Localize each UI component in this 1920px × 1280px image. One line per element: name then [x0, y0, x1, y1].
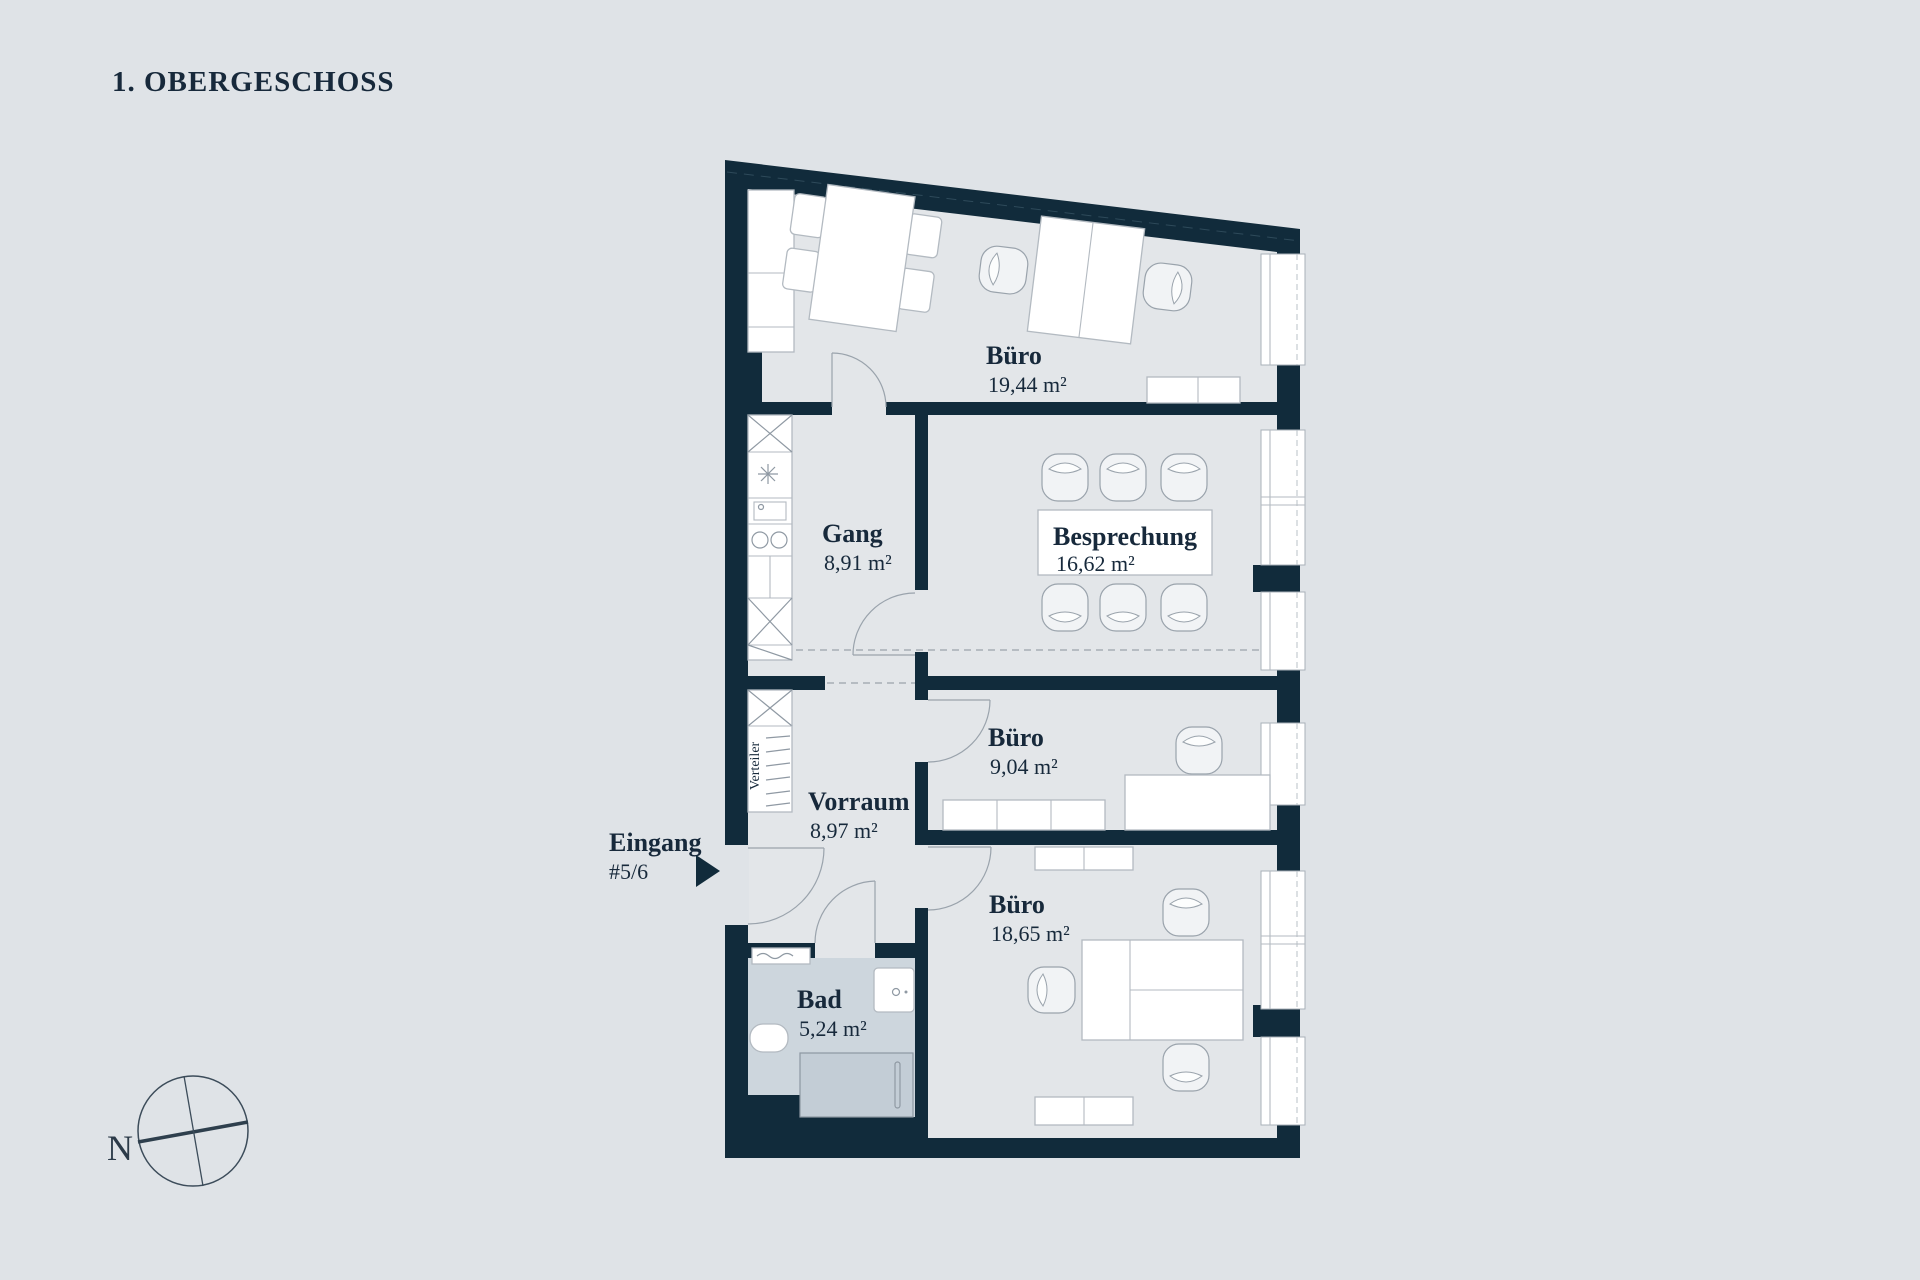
room-name: Büro: [988, 723, 1044, 752]
entrance-annotation: Eingang #5/6: [609, 828, 720, 887]
sideboard: [1035, 1097, 1133, 1125]
room-name: Vorraum: [808, 787, 910, 816]
room-label-gang: Gang 8,91 m²: [822, 519, 892, 575]
window: [1261, 254, 1305, 365]
room-name: Gang: [822, 519, 883, 548]
north-label: N: [107, 1128, 133, 1168]
bathtub-icon: [800, 1053, 913, 1117]
sink-icon: [758, 464, 778, 484]
office-chair: [1176, 727, 1222, 774]
room-area: 5,24 m²: [799, 1016, 867, 1041]
room-name: Besprechung: [1053, 522, 1197, 551]
kitchenette: [748, 415, 792, 660]
shower-icon: [874, 968, 914, 1012]
office-chair: [1163, 889, 1209, 936]
window: [1261, 871, 1305, 1009]
sideboard: [1147, 377, 1240, 403]
room-area: 8,91 m²: [824, 550, 892, 575]
washbasin-icon: [752, 948, 810, 964]
verteiler-label: Verteiler: [748, 741, 763, 790]
window: [1261, 592, 1305, 670]
desk: [1027, 216, 1144, 344]
room-area: 18,65 m²: [991, 921, 1070, 946]
room-name: Büro: [989, 890, 1045, 919]
window: [1261, 1037, 1305, 1125]
room-area: 8,97 m²: [810, 818, 878, 843]
floor-plan: Verteiler: [0, 0, 1920, 1280]
verteiler-cabinet: Verteiler: [748, 690, 792, 812]
sideboard: [943, 800, 1105, 830]
entrance-arrow-icon: [696, 855, 720, 887]
office-chair: [1163, 1044, 1209, 1091]
sideboard: [1035, 847, 1133, 870]
desk: [1125, 775, 1270, 830]
office-chair: [1028, 967, 1075, 1013]
room-area: 19,44 m²: [988, 372, 1067, 397]
entrance-unit: #5/6: [609, 859, 648, 884]
room-name: Büro: [986, 341, 1042, 370]
window: [1261, 430, 1305, 565]
office-chair: [1141, 261, 1193, 312]
entrance-label: Eingang: [609, 828, 702, 857]
entrance-opening: [722, 845, 749, 925]
toilet-icon: [750, 1024, 788, 1052]
office-chair: [977, 244, 1029, 295]
room-name: Bad: [797, 985, 842, 1014]
double-desk: [1082, 940, 1243, 1040]
room-area: 9,04 m²: [990, 754, 1058, 779]
room-area: 16,62 m²: [1056, 551, 1135, 576]
compass-icon: N: [107, 1076, 248, 1186]
